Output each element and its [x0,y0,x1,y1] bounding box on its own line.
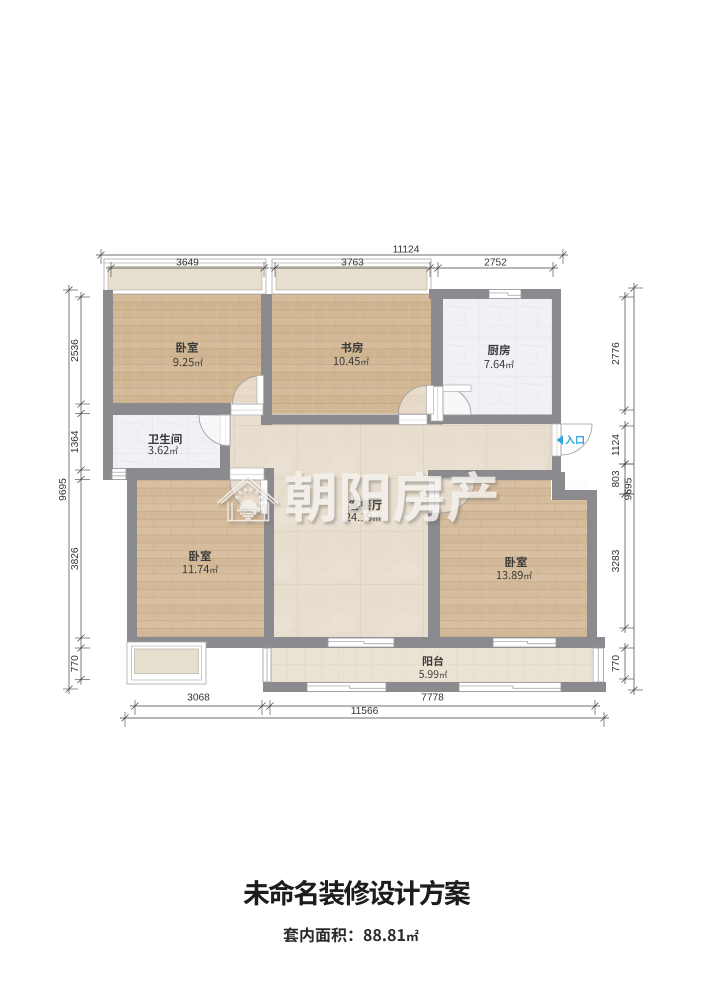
svg-text:3763: 3763 [341,258,364,269]
svg-text:3649: 3649 [176,258,199,269]
svg-text:7778: 7778 [421,693,444,704]
svg-text:770: 770 [611,655,622,672]
svg-text:1124: 1124 [611,434,622,456]
svg-text:9695: 9695 [58,478,69,501]
svg-text:803: 803 [611,470,622,487]
svg-text:2752: 2752 [484,258,507,269]
svg-text:11566: 11566 [351,706,379,717]
svg-text:2536: 2536 [70,339,81,362]
svg-text:11124: 11124 [393,245,420,256]
svg-text:2776: 2776 [611,342,622,365]
svg-text:3068: 3068 [187,693,210,704]
svg-text:3283: 3283 [611,549,622,572]
svg-text:770: 770 [70,655,81,672]
svg-text:3826: 3826 [70,547,81,570]
svg-text:9695: 9695 [624,477,635,500]
svg-text:1364: 1364 [70,430,81,453]
